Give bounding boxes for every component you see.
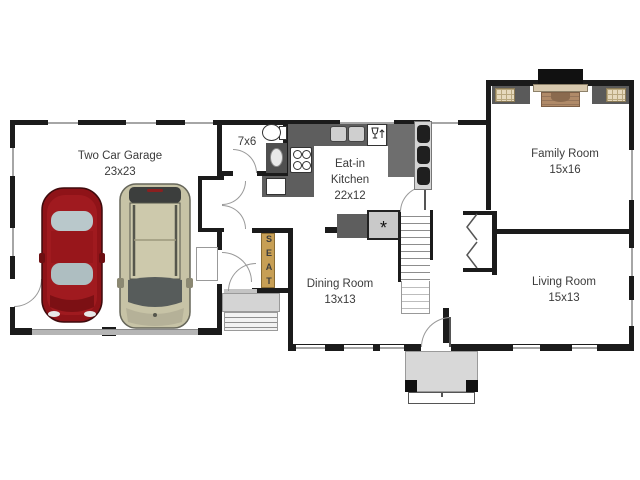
window [10,228,16,256]
refrigerator-icon: * [367,210,400,240]
window [380,345,404,351]
kitchen-name-line1: Eat-in [318,156,382,172]
red-car [38,183,106,327]
room-label-living-room: Living Room 15x13 [505,274,623,306]
family-room-size: 15x16 [500,162,630,178]
dining-room-size: 13x13 [298,292,382,308]
front-door-arc [421,317,451,347]
porch-step-divider [441,392,443,397]
room-label-dining-room: Dining Room 13x13 [298,276,382,308]
garage-size: 23x23 [40,164,200,180]
door-arc [233,149,257,173]
window [185,120,213,126]
wall [10,328,32,335]
garage-step-landing [196,247,218,281]
garage-name: Two Car Garage [40,148,200,164]
stairs-upper [401,210,430,281]
room-label-bathroom: 7x6 [224,134,270,150]
porch-post [405,380,417,392]
door-arc [222,205,246,229]
firebox-icon [551,93,570,102]
door-arc [222,181,246,205]
kitchen-counter [337,214,367,238]
dining-room-name: Dining Room [298,276,382,292]
window [572,345,597,351]
bath-sink-icon [270,148,283,167]
kitchen-size: 22x12 [318,188,382,204]
dishwasher-icon [367,124,387,146]
stove-icon [290,147,312,173]
living-room-name: Living Room [505,274,623,290]
built-in-shelf [495,88,515,102]
closet-niche [198,176,224,232]
sink-basin-icon [330,126,347,142]
tan-suv [116,180,194,332]
kitchen-counter [388,124,414,177]
front-door-leaf [449,317,451,347]
window [10,148,16,176]
seat-label: SEAT [264,234,274,290]
side-stoop [222,293,280,312]
wall [288,228,293,350]
stairs-lower [401,281,430,314]
wall [430,210,433,260]
window [126,120,156,126]
window [344,345,373,351]
side-steps [224,312,278,331]
bifold-closet-doors [464,213,480,269]
fireplace-chimney [538,69,583,85]
refrigerator-symbol: * [380,218,387,238]
window [296,345,325,351]
family-room-name: Family Room [500,146,630,162]
floor-plan: * SEAT [0,0,640,480]
seat-bench: SEAT [261,233,275,288]
cabinet [266,178,286,195]
window [430,120,458,126]
window [629,248,635,276]
kitchen-name-line2: Kitchen [318,172,382,188]
bathroom-size: 7x6 [224,134,270,150]
living-room-size: 15x13 [505,290,623,306]
porch-post [466,380,478,392]
wall [492,211,497,275]
window [513,345,540,351]
fireplace-hearth [541,92,580,107]
pantry-shelves [414,121,432,190]
wall [492,229,634,234]
sink-basin-icon [348,126,365,142]
wall [486,80,491,210]
window [629,300,635,326]
built-in-shelf [606,88,626,102]
room-label-family-room: Family Room 15x16 [500,146,630,178]
room-label-kitchen: Eat-in Kitchen 22x12 [318,156,382,204]
fireplace-mantel [533,84,588,92]
room-label-garage: Two Car Garage 23x23 [40,148,200,180]
window [48,120,78,126]
